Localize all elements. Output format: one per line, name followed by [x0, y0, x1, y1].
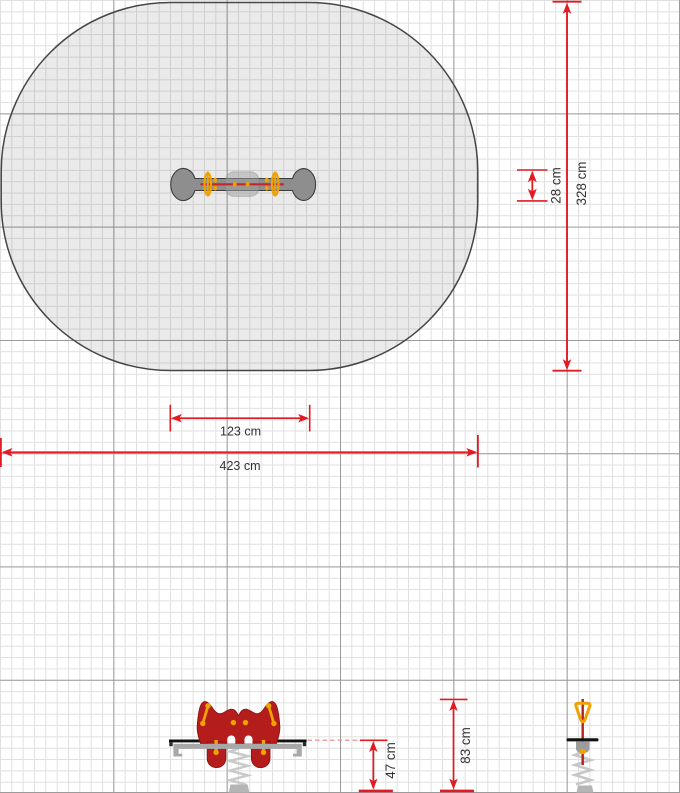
svg-text:328 cm: 328 cm — [574, 162, 589, 206]
svg-text:423 cm: 423 cm — [220, 459, 261, 473]
svg-text:28 cm: 28 cm — [549, 167, 564, 203]
svg-text:83 cm: 83 cm — [458, 727, 473, 763]
svg-text:47 cm: 47 cm — [383, 742, 398, 778]
svg-text:123 cm: 123 cm — [220, 425, 261, 439]
